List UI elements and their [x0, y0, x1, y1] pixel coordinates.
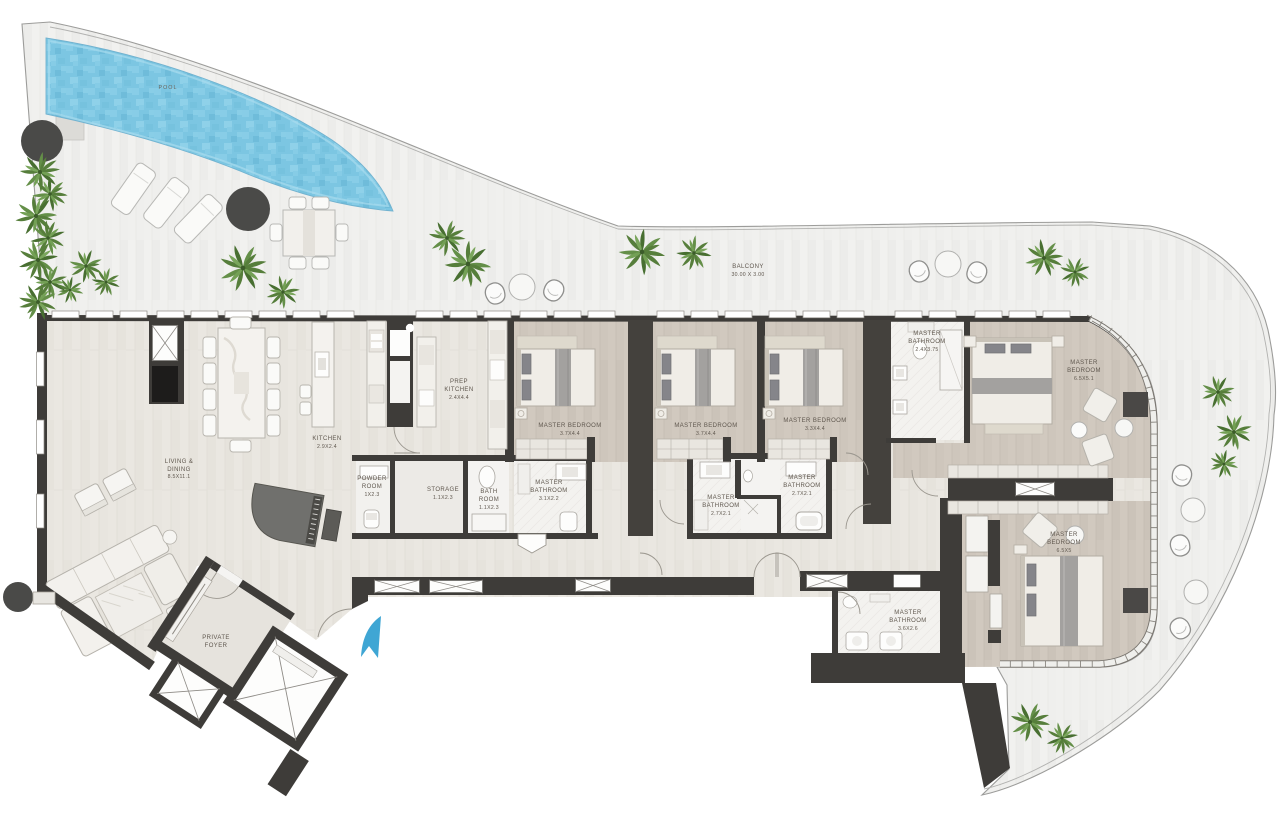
- svg-text:3.3X4.4: 3.3X4.4: [805, 426, 825, 432]
- svg-text:MASTER: MASTER: [894, 610, 922, 616]
- svg-text:1X2.3: 1X2.3: [364, 492, 379, 498]
- svg-text:BATHROOM: BATHROOM: [889, 618, 926, 624]
- svg-text:LIVING &: LIVING &: [165, 459, 194, 465]
- svg-text:STORAGE: STORAGE: [427, 487, 459, 493]
- svg-text:MASTER: MASTER: [1050, 532, 1078, 538]
- svg-text:MASTER: MASTER: [913, 331, 941, 337]
- svg-text:1.1X2.3: 1.1X2.3: [479, 505, 499, 511]
- svg-text:3.7X4.4: 3.7X4.4: [696, 431, 716, 437]
- svg-text:POOL: POOL: [159, 85, 178, 91]
- svg-text:30.00 X 3.00: 30.00 X 3.00: [731, 272, 764, 278]
- svg-text:BEDROOM: BEDROOM: [1067, 368, 1101, 374]
- svg-text:PRIVATE: PRIVATE: [202, 635, 230, 641]
- svg-text:MASTER BEDROOM: MASTER BEDROOM: [783, 418, 846, 424]
- svg-text:KITCHEN: KITCHEN: [312, 436, 341, 442]
- svg-text:MASTER: MASTER: [788, 475, 816, 481]
- svg-text:3.7X4.4: 3.7X4.4: [560, 431, 580, 437]
- svg-text:PREP: PREP: [450, 379, 468, 385]
- svg-text:1.1X2.3: 1.1X2.3: [433, 495, 453, 501]
- svg-text:MASTER: MASTER: [535, 480, 563, 486]
- svg-text:MASTER: MASTER: [707, 495, 735, 501]
- svg-text:8.5X11.1: 8.5X11.1: [168, 474, 191, 480]
- svg-text:MASTER BEDROOM: MASTER BEDROOM: [538, 423, 601, 429]
- svg-text:2.9X2.4: 2.9X2.4: [317, 444, 337, 450]
- svg-text:BATHROOM: BATHROOM: [783, 483, 820, 489]
- svg-text:ROOM: ROOM: [362, 484, 382, 490]
- svg-text:2.7X2.1: 2.7X2.1: [711, 511, 731, 517]
- svg-text:BEDROOM: BEDROOM: [1047, 540, 1081, 546]
- svg-text:2.7X2.1: 2.7X2.1: [792, 491, 812, 497]
- svg-text:MASTER BEDROOM: MASTER BEDROOM: [674, 423, 737, 429]
- svg-text:DINING: DINING: [167, 467, 190, 473]
- svg-text:3.6X2.6: 3.6X2.6: [898, 626, 918, 632]
- svg-text:BATHROOM: BATHROOM: [530, 488, 567, 494]
- svg-text:BATH: BATH: [480, 489, 497, 495]
- svg-text:2.4X4.4: 2.4X4.4: [449, 395, 469, 401]
- svg-text:ROOM: ROOM: [479, 497, 499, 503]
- svg-text:MASTER: MASTER: [1070, 360, 1098, 366]
- svg-text:2.4X3.75: 2.4X3.75: [915, 347, 938, 353]
- svg-text:BALCONY: BALCONY: [732, 264, 763, 270]
- svg-text:KITCHEN: KITCHEN: [444, 387, 473, 393]
- svg-text:6.5X5: 6.5X5: [1056, 548, 1071, 554]
- svg-text:BATHROOM: BATHROOM: [908, 339, 945, 345]
- svg-text:6.5X5.1: 6.5X5.1: [1074, 376, 1094, 382]
- svg-text:FOYER: FOYER: [205, 643, 228, 649]
- svg-text:3.1X2.2: 3.1X2.2: [539, 496, 559, 502]
- svg-text:BATHROOM: BATHROOM: [702, 503, 739, 509]
- svg-text:POWDER: POWDER: [357, 476, 387, 482]
